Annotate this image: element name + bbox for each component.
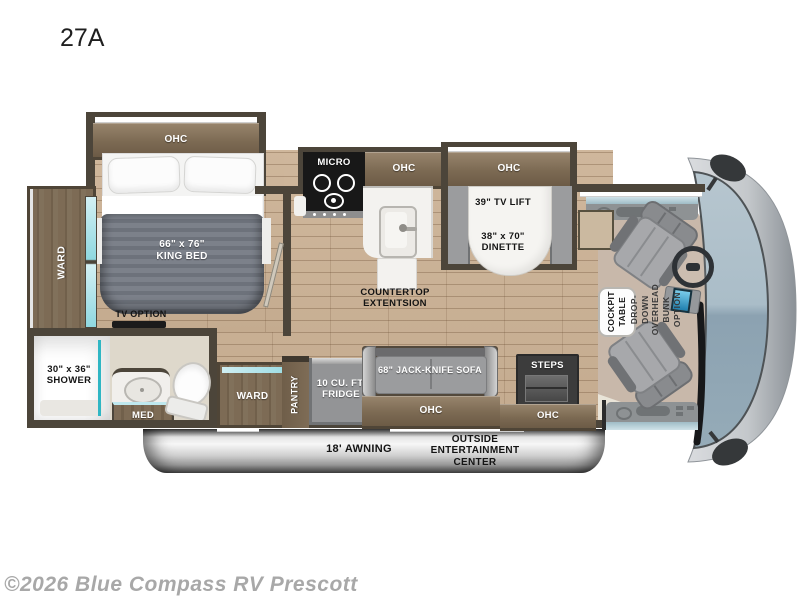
outside-entertainment-label: OUTSIDE ENTERTAINMENT CENTER: [405, 434, 545, 468]
page-title: 27A: [60, 24, 104, 53]
ohc-bedroom-label: OHC: [93, 123, 259, 157]
shower-label: 30" x 36" SHOWER: [34, 362, 104, 388]
wardrobe-doors-glass: [85, 196, 97, 328]
countertop-extension-box: [377, 258, 417, 290]
bedroom-divider-wall: [283, 186, 291, 336]
overhead-bunk-label: DROP-DOWN OVERHEAD BUNK OPTION: [629, 284, 682, 335]
entry-door-glass: [606, 422, 698, 430]
microwave-cooktop: MICRO: [303, 152, 365, 218]
wardrobe-bath-side: WARD: [217, 362, 288, 428]
cab-side-cabinet: [578, 210, 614, 250]
shower-pan: [40, 400, 102, 416]
burner-icon-left: [313, 174, 331, 192]
tv-bracket: [112, 321, 166, 328]
burner-icon-center: [324, 193, 344, 209]
dinette-slide-left-wall: [441, 142, 448, 270]
ohc-cabinet-dinette: OHC: [448, 152, 570, 189]
bath-sink: [124, 377, 162, 404]
bathroom-top-wall: [27, 328, 217, 336]
cooktop-knob-strip: [303, 211, 365, 218]
bathroom-left-wall: [27, 328, 34, 428]
copyright: ©2026 Blue Compass RV Prescott: [4, 573, 358, 597]
sofa-cushions: [375, 356, 487, 394]
shower-glass: [98, 340, 101, 416]
awning-label: 18' AWNING: [301, 442, 417, 458]
steps-label: STEPS: [518, 360, 577, 372]
ohc-sofa-label: OHC: [362, 396, 500, 426]
entry-door-frame: [602, 400, 606, 430]
cockpit-table-label: COCKPIT TABLE: [606, 291, 627, 332]
dinette-table: [468, 186, 552, 276]
burner-icon-right: [337, 174, 355, 192]
micro-label: MICRO: [303, 157, 365, 169]
slide-marker-left: [217, 428, 259, 432]
jack-knife-sofa: 68" JACK-KNIFE SOFA: [362, 346, 498, 396]
wardrobe-bath-label: WARD: [220, 387, 285, 407]
cab-top-wall: [575, 184, 705, 192]
ohc-cabinet-kitchen: OHC: [365, 152, 443, 189]
pillow-left: [107, 156, 180, 194]
pantry-label: PANTRY: [290, 376, 301, 414]
pillow-right: [183, 156, 256, 194]
kitchen-sink: [379, 206, 417, 258]
nightstand-right: [262, 218, 271, 264]
ohc-cabinet-entry: OHC: [500, 404, 596, 431]
shower: 30" x 36" SHOWER: [34, 336, 110, 420]
ohc-entry-label: OHC: [500, 404, 596, 428]
sofa-endcap-left: [362, 346, 376, 398]
overhead-bunk-option: DROP-DOWN OVERHEAD BUNK OPTION: [634, 262, 678, 358]
dinette-bench-left: [448, 186, 470, 264]
dinette-bench-right: [550, 186, 572, 264]
wardrobe-rear-label: WARD: [55, 246, 68, 280]
bed-blanket: 66" x 76" KING BED: [100, 214, 264, 314]
bath-vanity-top: [112, 368, 170, 406]
wardrobe-glass-shelf: [222, 367, 283, 373]
steps: STEPS: [516, 354, 579, 408]
awning-bar: 18' AWNING OUTSIDE ENTERTAINMENT CENTER: [143, 429, 605, 473]
ohc-cabinet-sofa: OHC: [362, 396, 500, 429]
ohc-kitchen-label: OHC: [365, 152, 443, 186]
ohc-dinette-label: OHC: [448, 152, 570, 186]
king-bed-label: 66" x 76" KING BED: [100, 236, 264, 266]
pantry-cabinet: PANTRY: [282, 356, 309, 428]
counter-notch: [294, 196, 306, 216]
steering-wheel-icon: [672, 246, 714, 288]
step-treads: [525, 375, 568, 402]
